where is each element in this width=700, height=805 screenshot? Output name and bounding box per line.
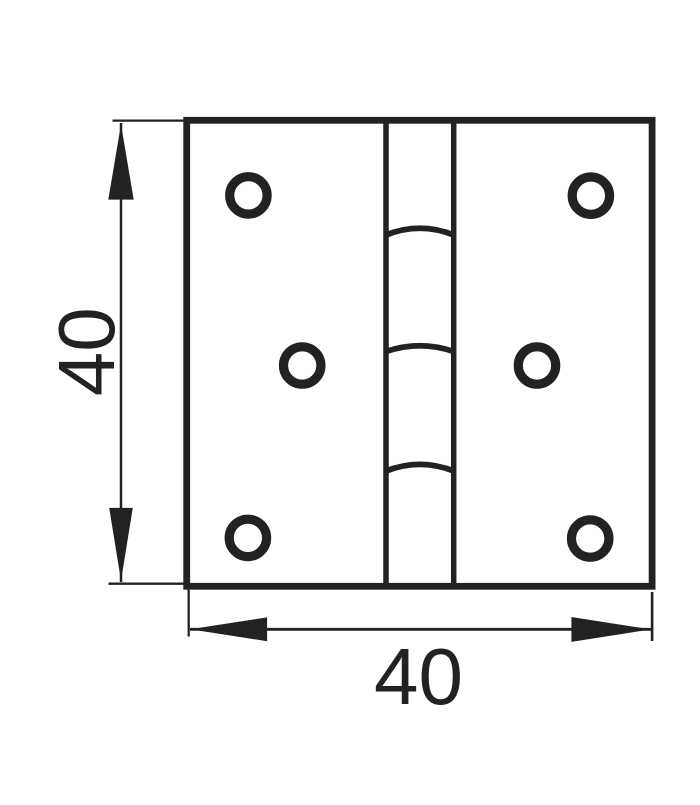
svg-text:40: 40 xyxy=(42,307,131,396)
svg-text:40: 40 xyxy=(374,632,463,721)
